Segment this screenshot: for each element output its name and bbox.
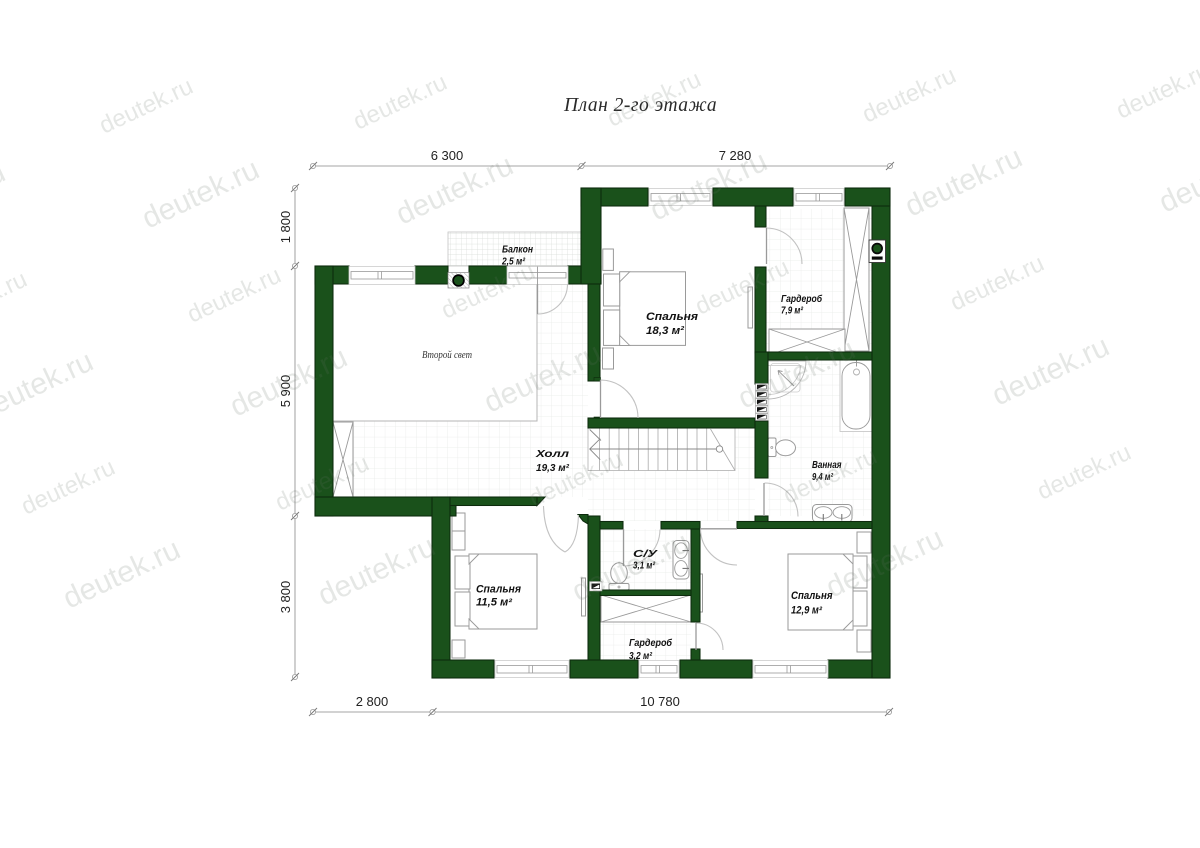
svg-text:deutek.ru: deutek.ru [183,262,285,329]
svg-text:deutek.ru: deutek.ru [946,250,1048,317]
svg-text:deutek.ru: deutek.ru [1154,137,1200,220]
svg-text:Холл: Холл [535,448,570,460]
svg-text:Спальня: Спальня [791,590,833,602]
svg-text:Гардероб: Гардероб [781,293,822,305]
svg-text:10 780: 10 780 [640,694,680,709]
svg-text:deutek.ru: deutek.ru [1033,439,1135,506]
svg-text:Балкон: Балкон [502,245,533,256]
svg-text:Гардероб: Гардероб [629,637,672,649]
svg-text:6 300: 6 300 [431,148,464,163]
svg-text:1 800: 1 800 [278,211,293,244]
svg-text:deutek.ru: deutek.ru [58,533,185,616]
svg-text:deutek.ru: deutek.ru [349,69,451,136]
svg-text:12,9 м²: 12,9 м² [791,605,822,617]
svg-text:deutek.ru: deutek.ru [313,530,440,613]
svg-text:deutek.ru: deutek.ru [137,153,264,236]
svg-text:7,9 м²: 7,9 м² [781,305,803,317]
svg-text:deutek.ru: deutek.ru [645,145,772,228]
svg-text:deutek.ru: deutek.ru [0,156,10,239]
svg-text:deutek.ru: deutek.ru [0,266,31,333]
svg-text:deutek.ru: deutek.ru [17,454,119,521]
svg-text:Спальня: Спальня [476,584,522,596]
svg-text:deutek.ru: deutek.ru [1112,58,1200,125]
svg-text:3,2 м²: 3,2 м² [629,650,652,662]
svg-text:deutek.ru: deutek.ru [987,330,1114,413]
svg-text:deutek.ru: deutek.ru [900,141,1027,224]
svg-text:Спальня: Спальня [646,311,699,323]
svg-text:deutek.ru: deutek.ru [95,73,197,140]
svg-text:11,5 м²: 11,5 м² [476,597,512,609]
svg-text:18,3 м²: 18,3 м² [646,325,684,337]
svg-text:deutek.ru: deutek.ru [0,345,98,428]
svg-text:Второй свет: Второй свет [422,349,472,361]
svg-text:2 800: 2 800 [356,694,389,709]
svg-text:3 800: 3 800 [278,581,293,614]
svg-text:deutek.ru: deutek.ru [858,62,960,129]
